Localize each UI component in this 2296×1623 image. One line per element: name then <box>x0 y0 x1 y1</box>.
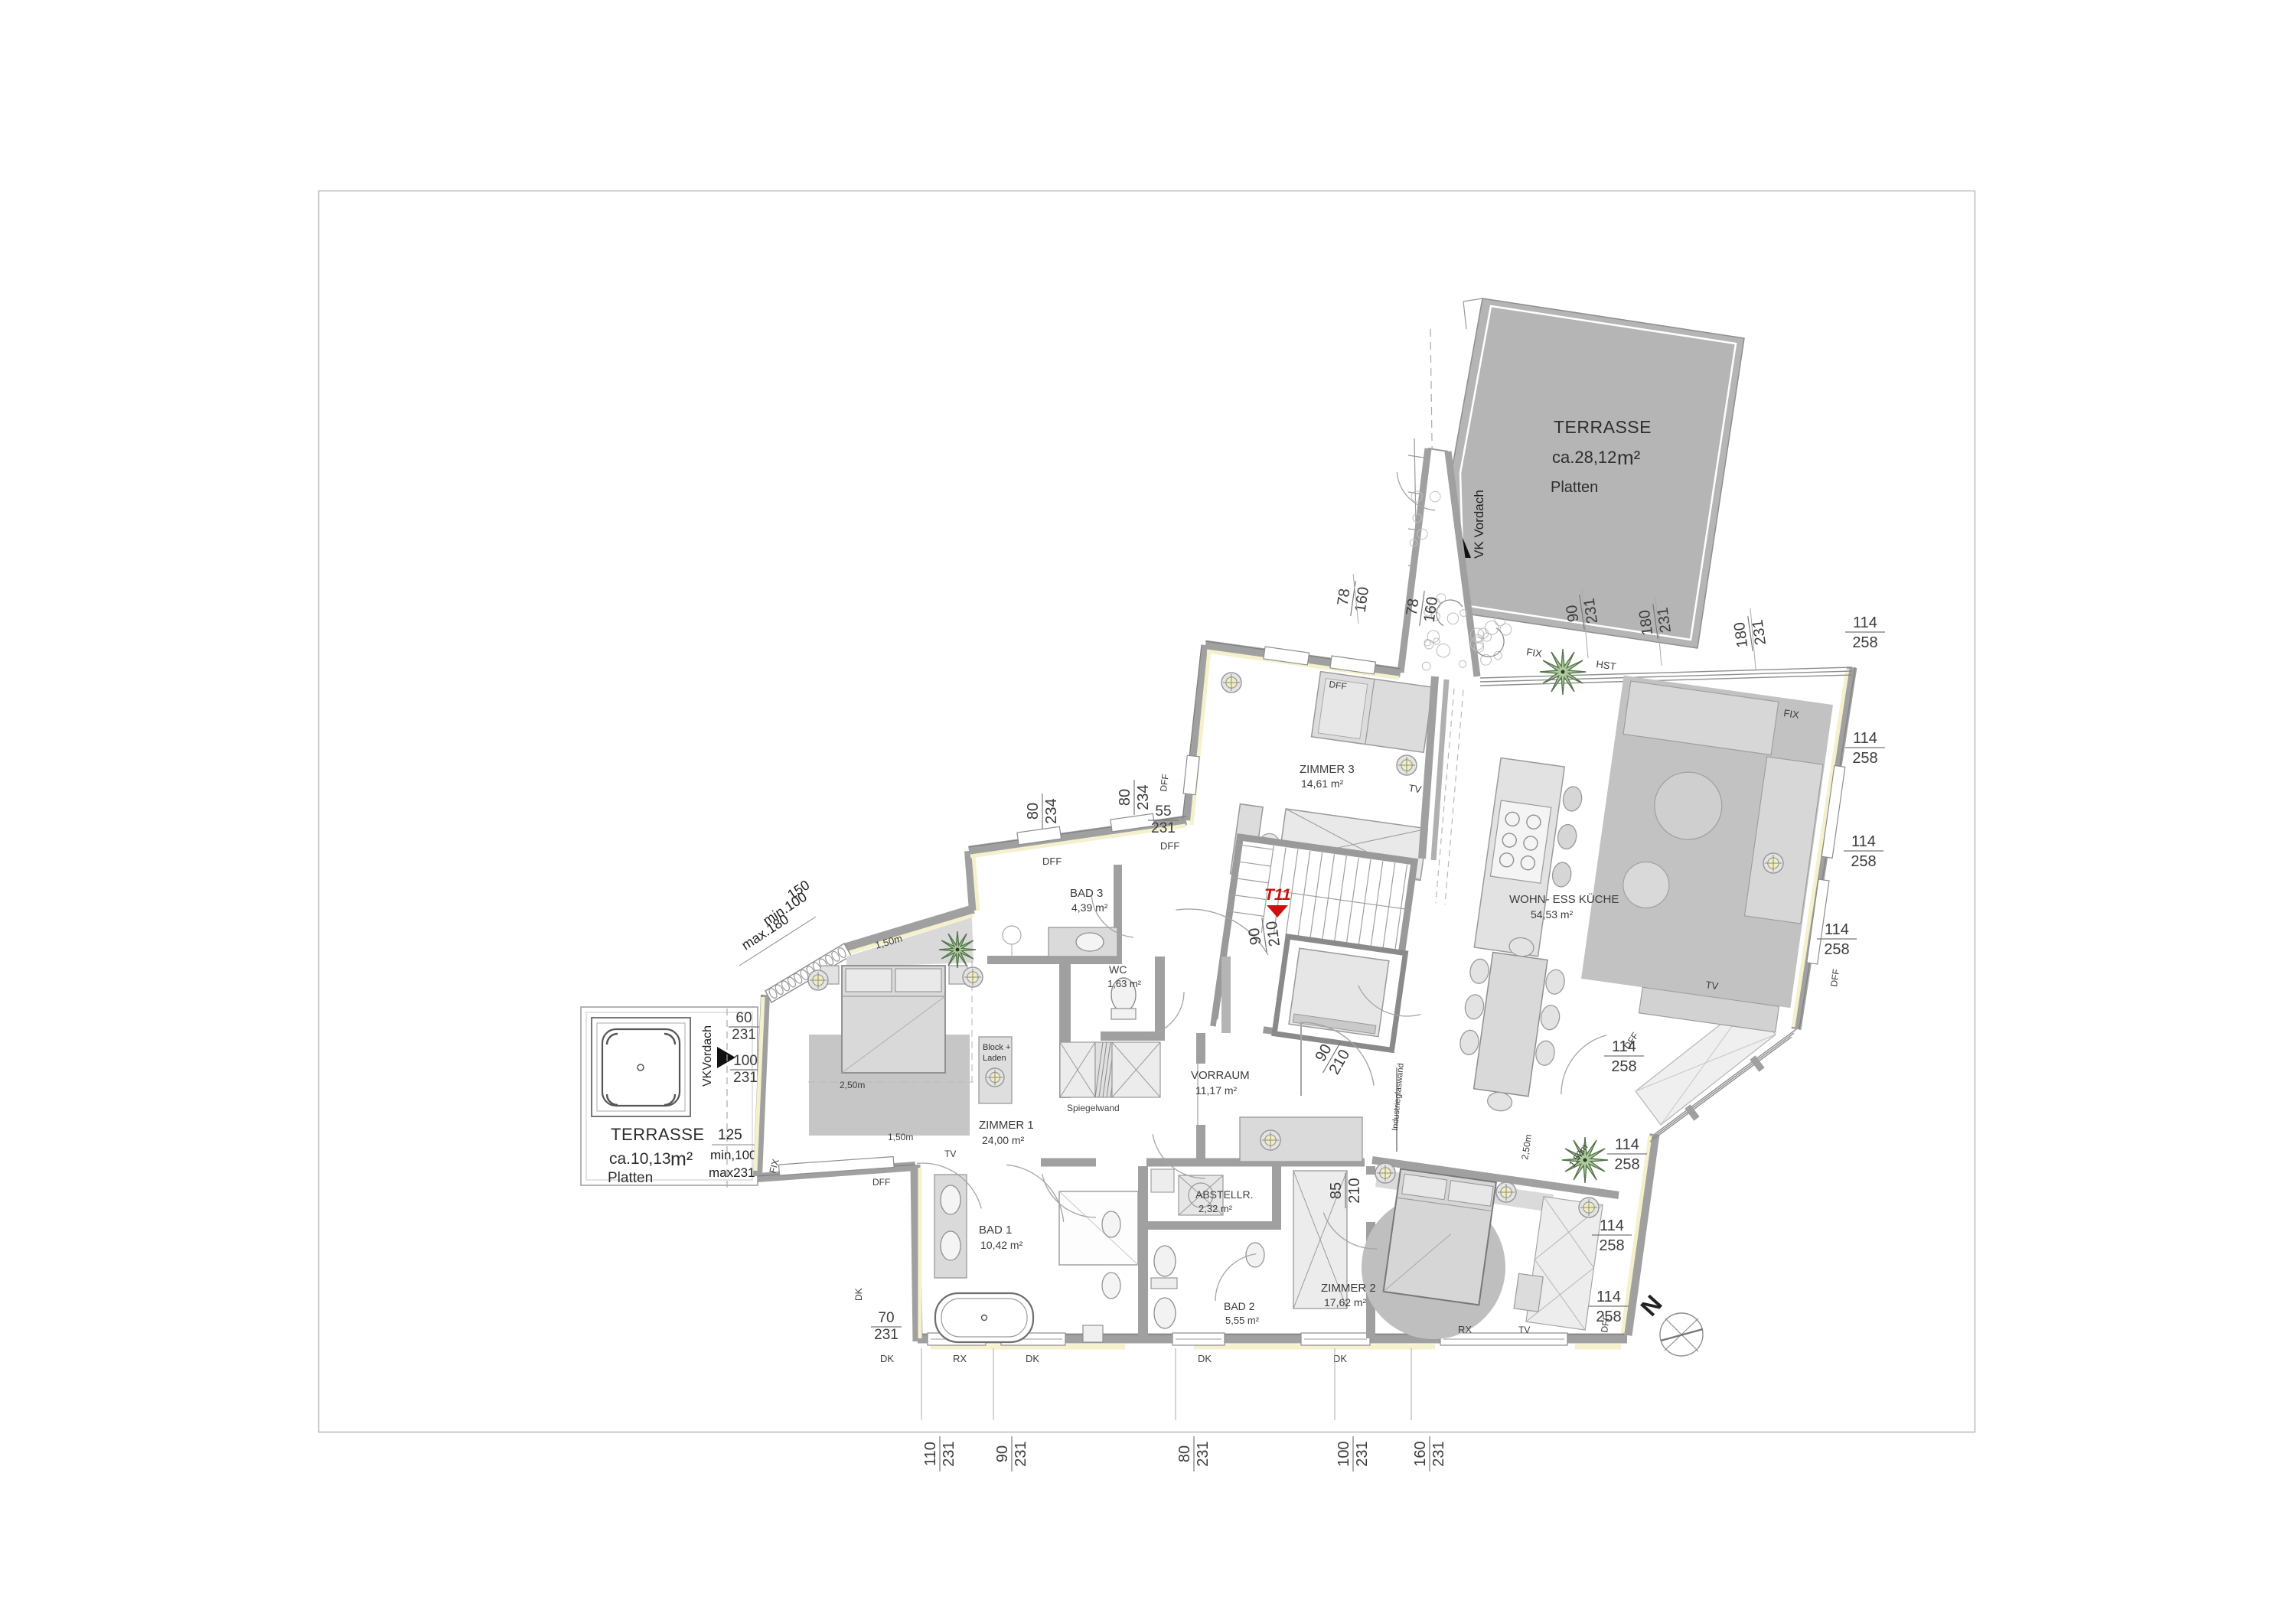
svg-text:VK Vordach: VK Vordach <box>1472 490 1486 559</box>
svg-text:114: 114 <box>1615 1136 1639 1153</box>
svg-text:160: 160 <box>1421 596 1441 624</box>
svg-text:10,42 m²: 10,42 m² <box>980 1239 1023 1251</box>
svg-text:DFF: DFF <box>1042 855 1062 867</box>
svg-text:DFF: DFF <box>1160 840 1179 852</box>
svg-text:24,00 m²: 24,00 m² <box>982 1134 1025 1146</box>
svg-text:231: 231 <box>1354 1441 1371 1466</box>
svg-text:258: 258 <box>1596 1309 1621 1325</box>
svg-text:min,100: min,100 <box>710 1148 756 1162</box>
svg-text:114: 114 <box>1853 614 1877 631</box>
svg-text:BAD 3: BAD 3 <box>1070 887 1103 900</box>
svg-text:DK: DK <box>880 1353 894 1364</box>
svg-text:ca.10,13: ca.10,13 <box>609 1150 671 1168</box>
svg-text:BAD 1: BAD 1 <box>979 1224 1012 1237</box>
svg-text:231: 231 <box>1013 1441 1029 1466</box>
svg-text:54,53 m²: 54,53 m² <box>1531 908 1574 921</box>
svg-text:160: 160 <box>1412 1441 1429 1466</box>
svg-text:TV: TV <box>1408 782 1423 795</box>
svg-text:T11: T11 <box>1264 886 1291 904</box>
svg-text:ABSTELLR.: ABSTELLR. <box>1195 1188 1253 1201</box>
svg-text:125: 125 <box>718 1127 742 1143</box>
svg-text:78: 78 <box>1404 598 1423 617</box>
svg-text:BAD 2: BAD 2 <box>1224 1300 1255 1312</box>
svg-text:100: 100 <box>733 1053 758 1069</box>
svg-text:14,61 m²: 14,61 m² <box>1301 777 1344 790</box>
svg-text:110: 110 <box>922 1442 939 1466</box>
svg-text:2,32 m²: 2,32 m² <box>1199 1203 1233 1214</box>
svg-text:100: 100 <box>1336 1441 1352 1466</box>
svg-text:ca.28,12: ca.28,12 <box>1552 448 1616 467</box>
svg-text:TV: TV <box>944 1149 956 1159</box>
svg-text:TERRASSE: TERRASSE <box>611 1125 705 1144</box>
svg-text:114: 114 <box>1825 921 1849 938</box>
svg-text:WC: WC <box>1109 963 1127 976</box>
svg-text:Platten: Platten <box>608 1170 653 1186</box>
svg-text:VKVordach: VKVordach <box>701 1025 714 1087</box>
svg-text:85: 85 <box>1328 1182 1345 1199</box>
svg-text:TERRASSE: TERRASSE <box>1554 417 1652 437</box>
svg-text:DFF: DFF <box>872 1177 890 1188</box>
svg-text:TV: TV <box>1518 1325 1530 1335</box>
svg-text:4,39 m²: 4,39 m² <box>1071 901 1108 914</box>
svg-text:DFF: DFF <box>1158 774 1171 793</box>
svg-text:231: 231 <box>941 1441 957 1466</box>
svg-text:231: 231 <box>732 1027 756 1043</box>
svg-text:231: 231 <box>874 1327 899 1343</box>
svg-text:17,62 m²: 17,62 m² <box>1324 1296 1367 1309</box>
svg-text:231: 231 <box>1151 820 1176 836</box>
svg-text:90: 90 <box>1246 927 1265 946</box>
svg-text:11,17 m²: 11,17 m² <box>1195 1084 1238 1097</box>
svg-text:RX: RX <box>1458 1324 1472 1335</box>
svg-text:78: 78 <box>1335 588 1354 607</box>
svg-text:114: 114 <box>1596 1289 1621 1305</box>
svg-text:ZIMMER 2: ZIMMER 2 <box>1321 1282 1376 1295</box>
svg-text:258: 258 <box>1852 750 1877 767</box>
svg-text:114: 114 <box>1853 730 1877 747</box>
svg-text:231: 231 <box>1195 1441 1212 1466</box>
svg-text:max231: max231 <box>709 1165 755 1180</box>
svg-text:DK: DK <box>1198 1353 1212 1364</box>
svg-text:210: 210 <box>1346 1178 1363 1203</box>
svg-text:ZIMMER 3: ZIMMER 3 <box>1300 763 1355 776</box>
svg-text:55: 55 <box>1155 803 1171 820</box>
svg-text:1,63 m²: 1,63 m² <box>1107 978 1142 989</box>
svg-text:180: 180 <box>1731 621 1751 649</box>
svg-text:90: 90 <box>1564 604 1583 623</box>
svg-text:70: 70 <box>878 1310 894 1326</box>
svg-text:m²: m² <box>670 1149 693 1170</box>
svg-text:Spiegelwand: Spiegelwand <box>1067 1103 1120 1113</box>
svg-text:258: 258 <box>1824 941 1849 958</box>
svg-text:231: 231 <box>733 1070 758 1086</box>
svg-text:DK: DK <box>853 1288 864 1301</box>
svg-text:5,55 m²: 5,55 m² <box>1225 1315 1260 1326</box>
svg-text:RX: RX <box>953 1353 967 1364</box>
svg-text:60: 60 <box>735 1010 752 1026</box>
svg-text:FIX: FIX <box>1783 707 1800 721</box>
svg-text:Block +: Block + <box>983 1043 1010 1052</box>
svg-text:258: 258 <box>1599 1237 1624 1254</box>
svg-text:90: 90 <box>994 1445 1011 1462</box>
svg-text:Platten: Platten <box>1551 479 1598 496</box>
svg-text:210: 210 <box>1264 920 1283 947</box>
svg-text:ZIMMER 1: ZIMMER 1 <box>979 1119 1034 1132</box>
svg-text:80: 80 <box>1025 803 1042 820</box>
svg-text:258: 258 <box>1852 634 1877 651</box>
svg-text:m²: m² <box>1617 446 1641 469</box>
svg-text:114: 114 <box>1851 833 1876 850</box>
svg-text:114: 114 <box>1600 1217 1624 1234</box>
svg-text:180: 180 <box>1636 609 1656 637</box>
svg-text:80: 80 <box>1176 1445 1193 1462</box>
svg-text:80: 80 <box>1117 789 1133 806</box>
svg-text:VORRAUM: VORRAUM <box>1191 1069 1250 1082</box>
svg-text:234: 234 <box>1043 798 1060 823</box>
svg-text:114: 114 <box>1612 1038 1636 1055</box>
svg-text:2,50m: 2,50m <box>840 1080 865 1090</box>
svg-text:258: 258 <box>1614 1156 1639 1173</box>
svg-text:FIX: FIX <box>1526 646 1543 660</box>
svg-text:Laden: Laden <box>983 1054 1006 1063</box>
svg-text:TV: TV <box>1705 979 1720 992</box>
svg-text:WOHN- ESS KÜCHE: WOHN- ESS KÜCHE <box>1509 892 1619 906</box>
svg-text:DK: DK <box>1333 1353 1347 1364</box>
svg-text:1,50m: 1,50m <box>888 1132 913 1142</box>
svg-text:258: 258 <box>1611 1058 1636 1075</box>
svg-text:234: 234 <box>1135 784 1152 810</box>
svg-text:DK: DK <box>1026 1353 1039 1364</box>
svg-text:258: 258 <box>1851 853 1876 870</box>
svg-text:231: 231 <box>1430 1441 1447 1466</box>
